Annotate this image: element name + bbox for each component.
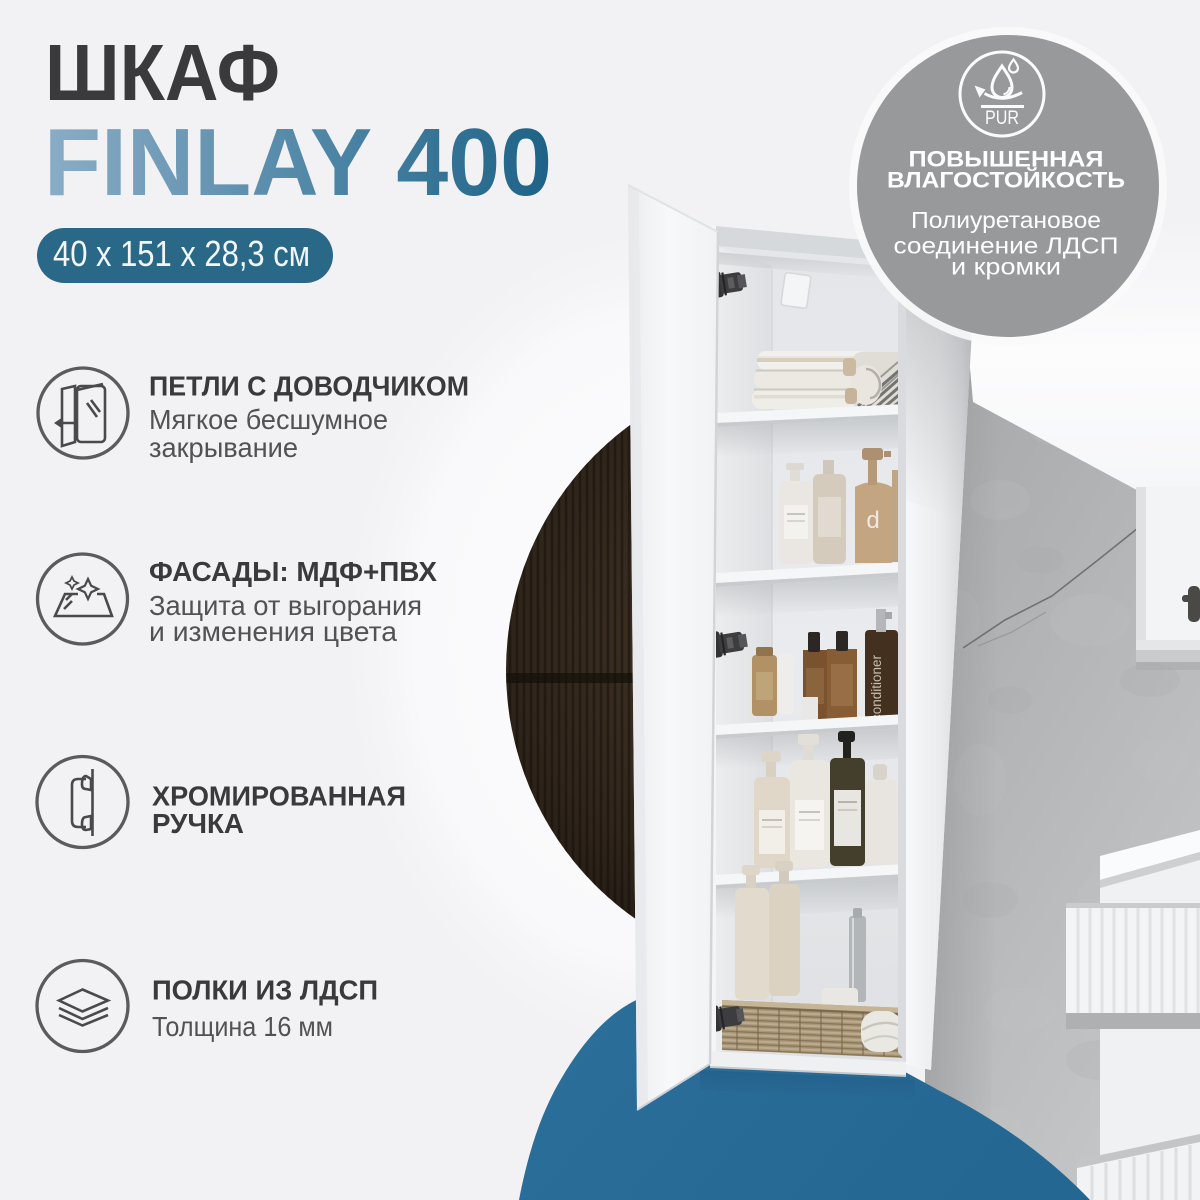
svg-text:и изменения цвета: и изменения цвета xyxy=(149,616,397,647)
svg-text:FINLAY 400: FINLAY 400 xyxy=(44,109,552,216)
svg-text:ФАСАДЫ: МДФ+ПВХ: ФАСАДЫ: МДФ+ПВХ xyxy=(149,556,437,587)
svg-text:и кромки: и кромки xyxy=(951,254,1061,280)
svg-text:ПЕТЛИ С ДОВОДЧИКОМ: ПЕТЛИ С ДОВОДЧИКОМ xyxy=(149,370,469,401)
svg-text:Мягкое бесшумное: Мягкое бесшумное xyxy=(149,404,388,435)
svg-text:40 x 151 x 28,3 см: 40 x 151 x 28,3 см xyxy=(53,233,310,274)
svg-text:PUR: PUR xyxy=(985,108,1019,129)
svg-text:Толщина 16 мм: Толщина 16 мм xyxy=(152,1011,333,1042)
svg-text:ПОЛКИ ИЗ ЛДСП: ПОЛКИ ИЗ ЛДСП xyxy=(152,974,378,1005)
svg-text:d: d xyxy=(866,507,879,534)
svg-text:закрывание: закрывание xyxy=(149,432,298,463)
svg-text:ХРОМИРОВАННАЯ: ХРОМИРОВАННАЯ xyxy=(152,780,406,811)
svg-text:conditioner: conditioner xyxy=(869,654,884,721)
svg-text:ШКАФ: ШКАФ xyxy=(45,28,280,117)
svg-text:Полиуретановое: Полиуретановое xyxy=(911,207,1101,233)
svg-text:РУЧКА: РУЧКА xyxy=(152,808,244,839)
svg-text:ВЛАГОСТОЙКОСТЬ: ВЛАГОСТОЙКОСТЬ xyxy=(887,168,1125,193)
